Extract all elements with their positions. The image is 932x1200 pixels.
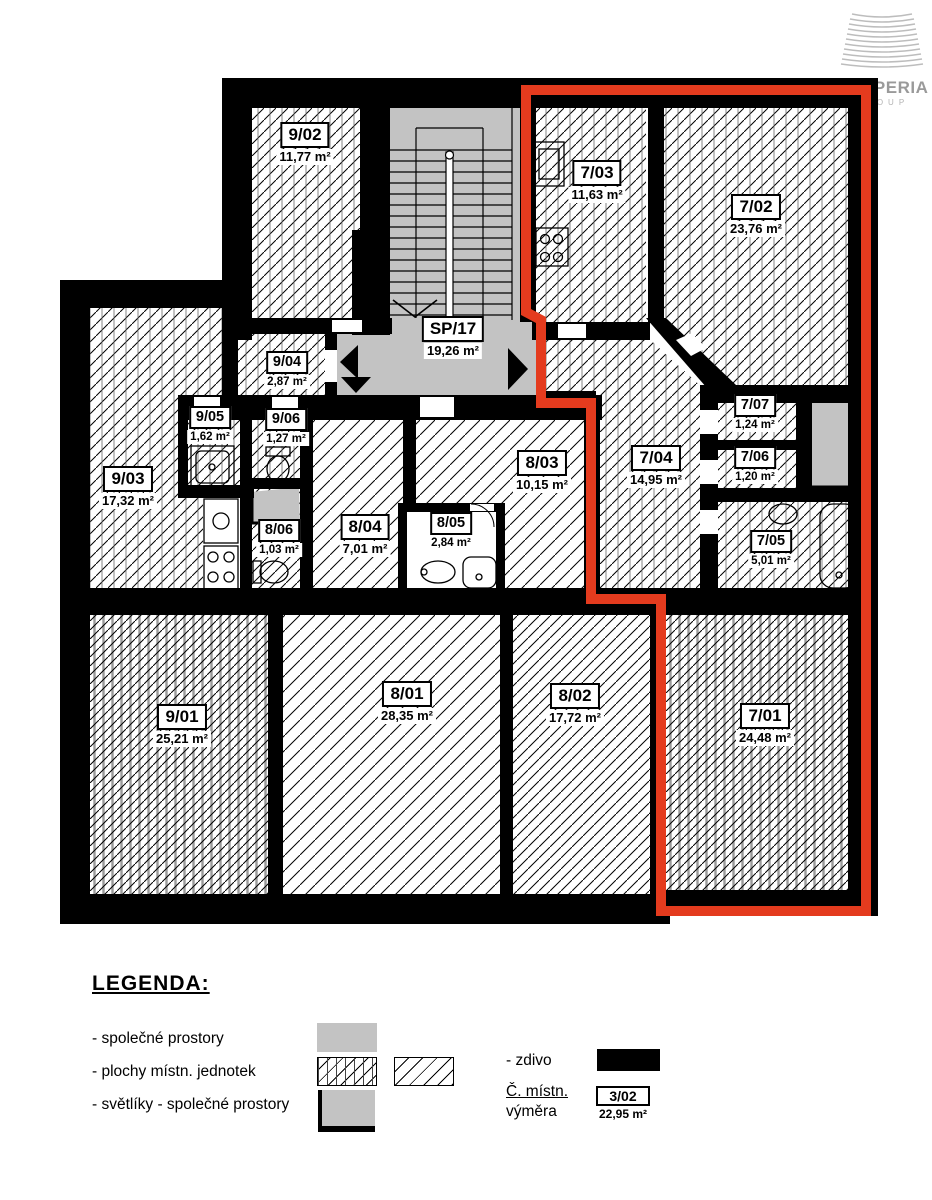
room-label-7-02: 7/02 23,76 m² [727, 194, 785, 237]
legend-swatch-unit-hatch-2 [394, 1057, 454, 1086]
room-label-8-04: 8/04 7,01 m² [340, 514, 391, 557]
legend-room-no-label: Č. místn. [506, 1083, 568, 1101]
room-label-8-06: 8/06 1,03 m² [256, 519, 302, 557]
room-label-7-06: 7/06 1,20 m² [732, 446, 778, 484]
legend-area-label: výměra [506, 1103, 557, 1121]
room-label-9-03: 9/03 17,32 m² [99, 466, 157, 509]
legend-sample-area: 22,95 m² [599, 1107, 647, 1121]
room-label-8-02: 8/02 17,72 m² [546, 683, 604, 726]
legend-item-zdivo: - zdivo [506, 1052, 552, 1070]
legend-item-skylights: - světlíky - společné prostory [92, 1096, 289, 1114]
room-label-9-06: 9/06 1,27 m² [263, 408, 309, 446]
room-label-7-03: 7/03 11,63 m² [568, 160, 625, 203]
legend-title: LEGENDA: [92, 972, 210, 996]
room-label-8-01: 8/01 28,35 m² [378, 681, 436, 724]
legend-swatch-skylight [318, 1090, 375, 1132]
room-label-7-01: 7/01 24,48 m² [736, 703, 794, 746]
floorplan-page: { "logo": { "brand": "PROPERIA", "sub": … [0, 0, 932, 1200]
legend-swatch-unit-hatch-1 [317, 1057, 377, 1086]
room-label-9-05: 9/05 1,62 m² [187, 406, 233, 444]
legend-swatch-wall [597, 1049, 660, 1071]
room-label-7-07: 7/07 1,24 m² [732, 394, 778, 432]
room-label-7-04: 7/04 14,95 m² [627, 445, 685, 488]
room-label-7-05: 7/05 5,01 m² [748, 530, 794, 568]
legend-swatch-common [317, 1023, 377, 1052]
legend-sample-room-box: 3/02 [596, 1086, 650, 1106]
room-label-9-01: 9/01 25,21 m² [153, 704, 211, 747]
room-label-sp-17: SP/17 19,26 m² [422, 316, 484, 359]
legend-item-common: - společné prostory [92, 1030, 224, 1048]
room-label-9-02: 9/02 11,77 m² [276, 122, 333, 165]
legend-item-units: - plochy místn. jednotek [92, 1063, 256, 1081]
legend: LEGENDA: - společné prostory - plochy mí… [0, 950, 932, 1200]
room-label-8-05: 8/05 2,84 m² [428, 512, 474, 550]
room-label-8-03: 8/03 10,15 m² [513, 450, 571, 493]
room-label-9-04: 9/04 2,87 m² [264, 351, 310, 389]
